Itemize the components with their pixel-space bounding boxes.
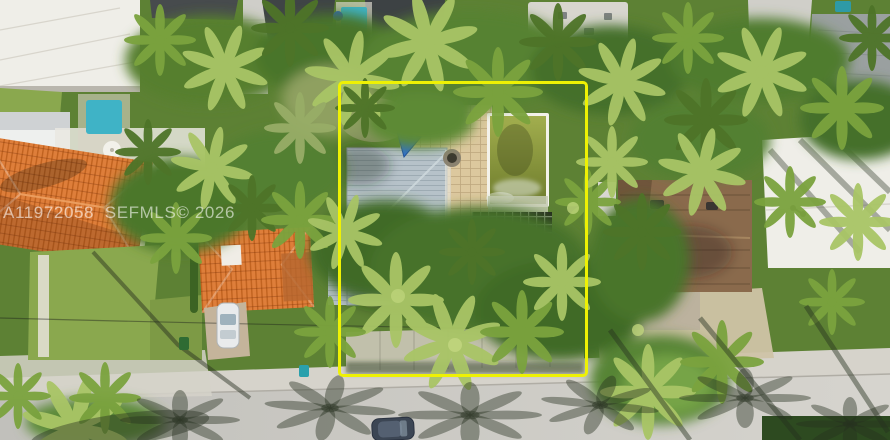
white-car-driveway [217,303,239,348]
neighbor-pool-left [86,100,122,134]
green-bin [179,337,189,350]
white-flat-roof-house [0,0,140,92]
teal-bin [299,365,309,377]
aerial-scene [0,0,890,440]
chimney [221,245,242,266]
aerial-photo: A11972058 SEFMLS© 2026 [0,0,890,440]
suv-street [371,417,414,440]
recycle-bin [835,1,851,12]
